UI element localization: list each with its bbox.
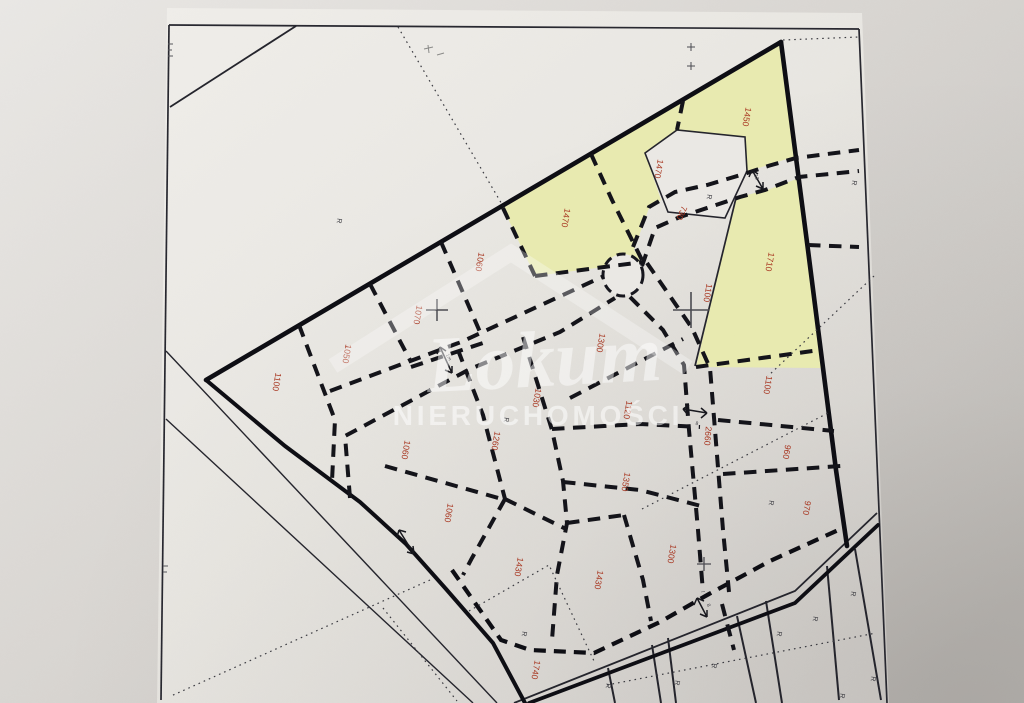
svg-text:2660: 2660: [702, 426, 714, 446]
svg-text:NIERUCHOMOŚCI: NIERUCHOMOŚCI: [393, 400, 684, 431]
svg-text:Lokum: Lokum: [423, 310, 664, 410]
